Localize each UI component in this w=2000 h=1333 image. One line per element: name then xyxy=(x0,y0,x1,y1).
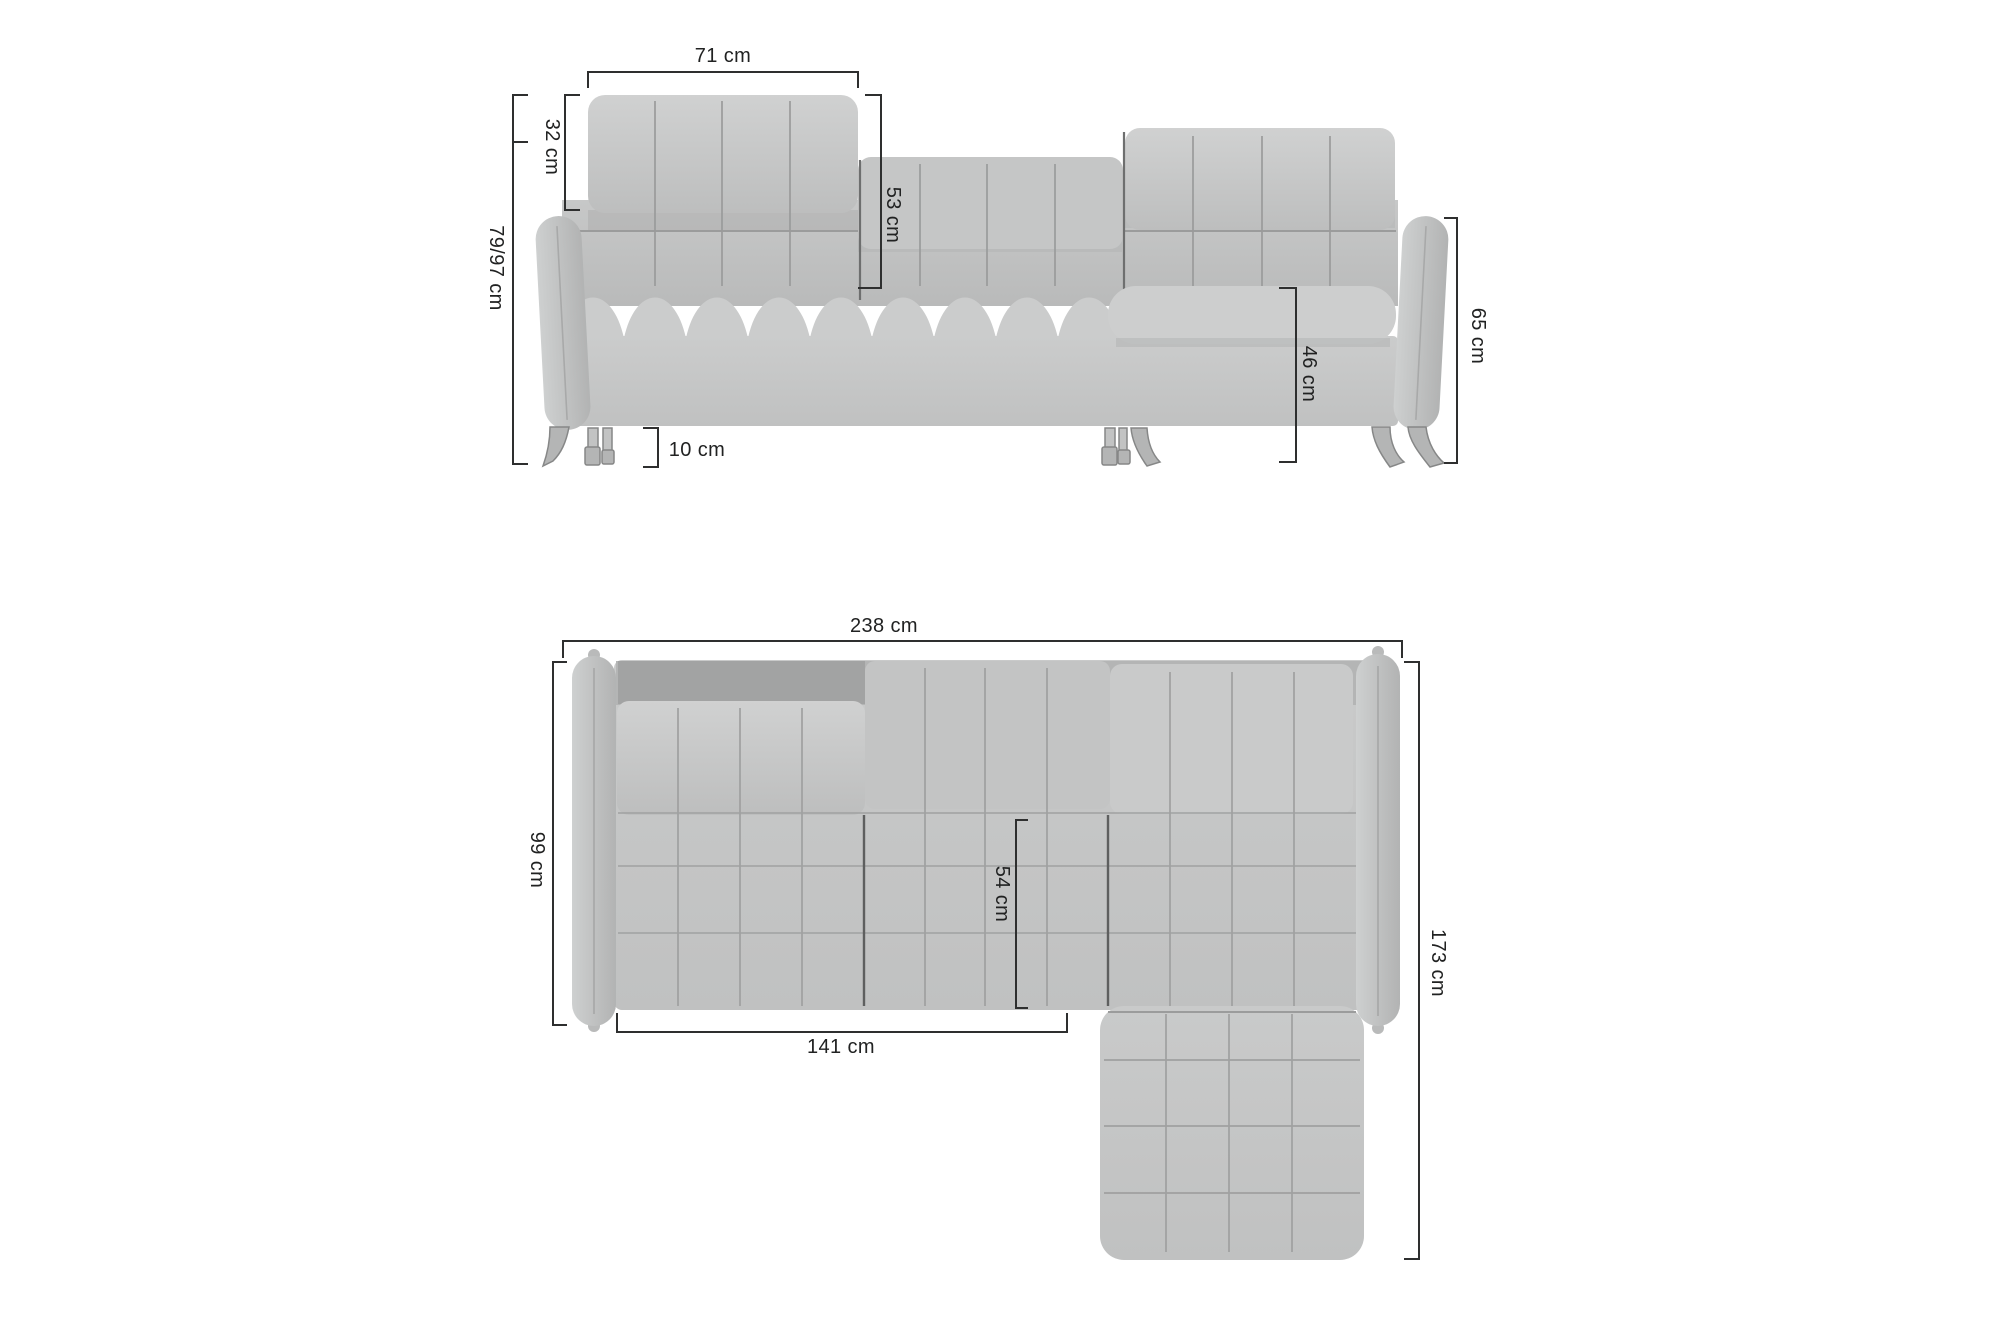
dim-total-width: 238 cm xyxy=(850,616,918,636)
sofa-dimension-diagram: 71 cm 32 cm 79/97 cm 53 cm 10 cm 46 cm 6… xyxy=(0,0,2000,1333)
front-left-headrest xyxy=(588,95,858,213)
top-left-headrest xyxy=(617,701,865,815)
bracket-headrest-width xyxy=(588,72,858,88)
dim-chaise-depth: 173 cm xyxy=(1428,929,1448,997)
bracket-total-width xyxy=(563,641,1402,658)
front-leg-middle xyxy=(1131,428,1160,466)
front-base xyxy=(558,336,1398,426)
dim-leg-height: 10 cm xyxy=(669,440,725,460)
bracket-total-depth xyxy=(553,662,567,1025)
top-chaise xyxy=(1100,1006,1364,1260)
front-chaise-pillow xyxy=(1108,286,1396,344)
bracket-leg-height xyxy=(643,428,658,467)
front-right-headrest xyxy=(1125,128,1395,230)
top-left-armrest xyxy=(572,649,616,1032)
bracket-total-height xyxy=(513,95,528,464)
bracket-headrest-height xyxy=(565,95,580,210)
bracket-chaise-depth xyxy=(1404,662,1419,1259)
dim-total-depth: 99 cm xyxy=(527,832,547,888)
dim-headrest-height: 32 cm xyxy=(542,119,562,175)
front-chaise-pillow-shadow xyxy=(1116,338,1390,347)
bracket-seat-width xyxy=(617,1013,1067,1032)
dim-seat-height: 46 cm xyxy=(1299,346,1319,402)
front-feet-left xyxy=(585,428,614,465)
dim-backrest-height: 53 cm xyxy=(883,187,903,243)
top-middle-backrest xyxy=(865,661,1110,809)
dim-total-height: 79/97 cm xyxy=(486,225,506,310)
dim-seat-depth: 54 cm xyxy=(992,866,1012,922)
diagram-artwork xyxy=(0,0,2000,1333)
top-right-armrest xyxy=(1356,646,1400,1034)
front-feet-middle xyxy=(1102,428,1160,466)
front-legs-right xyxy=(1372,427,1444,467)
front-leg-left xyxy=(543,427,569,466)
dim-armrest-height: 65 cm xyxy=(1468,308,1488,364)
dim-headrest-width: 71 cm xyxy=(695,46,751,66)
top-headrest-back-shadow xyxy=(618,661,865,704)
sofa-top-view xyxy=(572,646,1400,1260)
front-right-armrest xyxy=(1392,215,1449,431)
dim-seat-width: 141 cm xyxy=(807,1037,875,1057)
sofa-front-view xyxy=(534,95,1449,467)
